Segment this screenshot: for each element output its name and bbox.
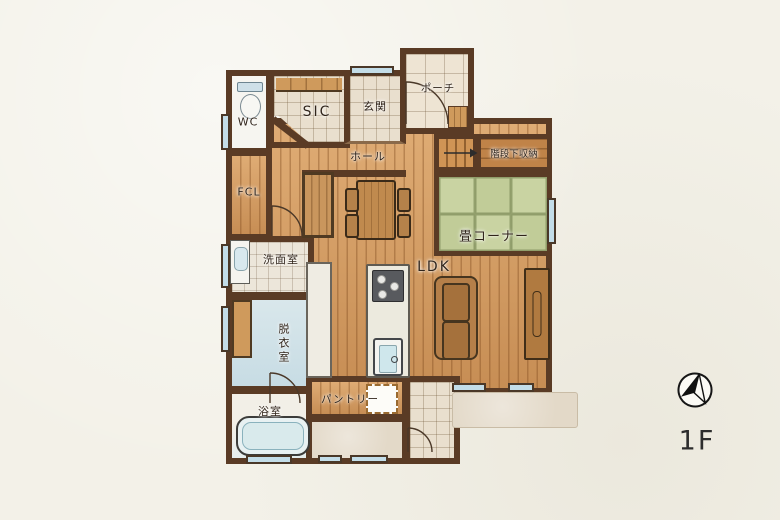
sofa (434, 276, 478, 360)
stove-icon (372, 270, 404, 302)
window (350, 455, 388, 463)
label-stair-storage: 階段下収納 (490, 146, 538, 160)
terrace-area (452, 392, 578, 428)
label-porch: ポーチ (421, 81, 456, 96)
dining-table (356, 180, 396, 240)
bathtub-icon (236, 416, 310, 456)
window (221, 244, 230, 288)
stairs (434, 134, 478, 172)
porch-step (448, 106, 468, 128)
window (508, 383, 534, 392)
window (221, 114, 230, 150)
label-ldk: LDK (417, 259, 451, 275)
tv-board (524, 268, 550, 360)
label-wc: WC (238, 116, 259, 129)
label-sic: SIC (303, 104, 332, 120)
label-genkan: 玄関 (363, 98, 387, 114)
label-pantry: パントリー (321, 392, 379, 407)
kitchen-back-counter (306, 262, 332, 378)
dining-chair (345, 188, 359, 212)
label-fcl: FCL (237, 186, 260, 199)
label-dressing-room: 脱衣室 (275, 323, 291, 365)
window (547, 198, 556, 244)
dining-chair (345, 214, 359, 238)
storage-cabinet (302, 172, 334, 238)
toilet-icon (237, 82, 263, 92)
floor-level-label: 1F (679, 426, 716, 457)
dressing-closet (232, 300, 252, 358)
washbasin-icon (230, 240, 250, 284)
north-compass-icon (675, 370, 715, 410)
sic-shelf (276, 78, 342, 92)
window (318, 455, 342, 463)
label-tatami-corner: 畳コーナー (459, 226, 529, 245)
dining-chair (397, 214, 411, 238)
window (350, 66, 394, 75)
kitchen-sink-icon (373, 338, 403, 376)
floor-plan-canvas: WC SIC 玄関 ポーチ ホール 階段下収納 畳コーナー FCL 洗面室 LD… (0, 0, 780, 520)
label-hall: ホール (350, 148, 386, 164)
window (452, 383, 486, 392)
dining-chair (397, 188, 411, 212)
window (221, 306, 230, 352)
label-bathroom: 浴室 (258, 403, 282, 419)
window (246, 455, 292, 464)
label-washroom: 洗面室 (263, 251, 299, 267)
